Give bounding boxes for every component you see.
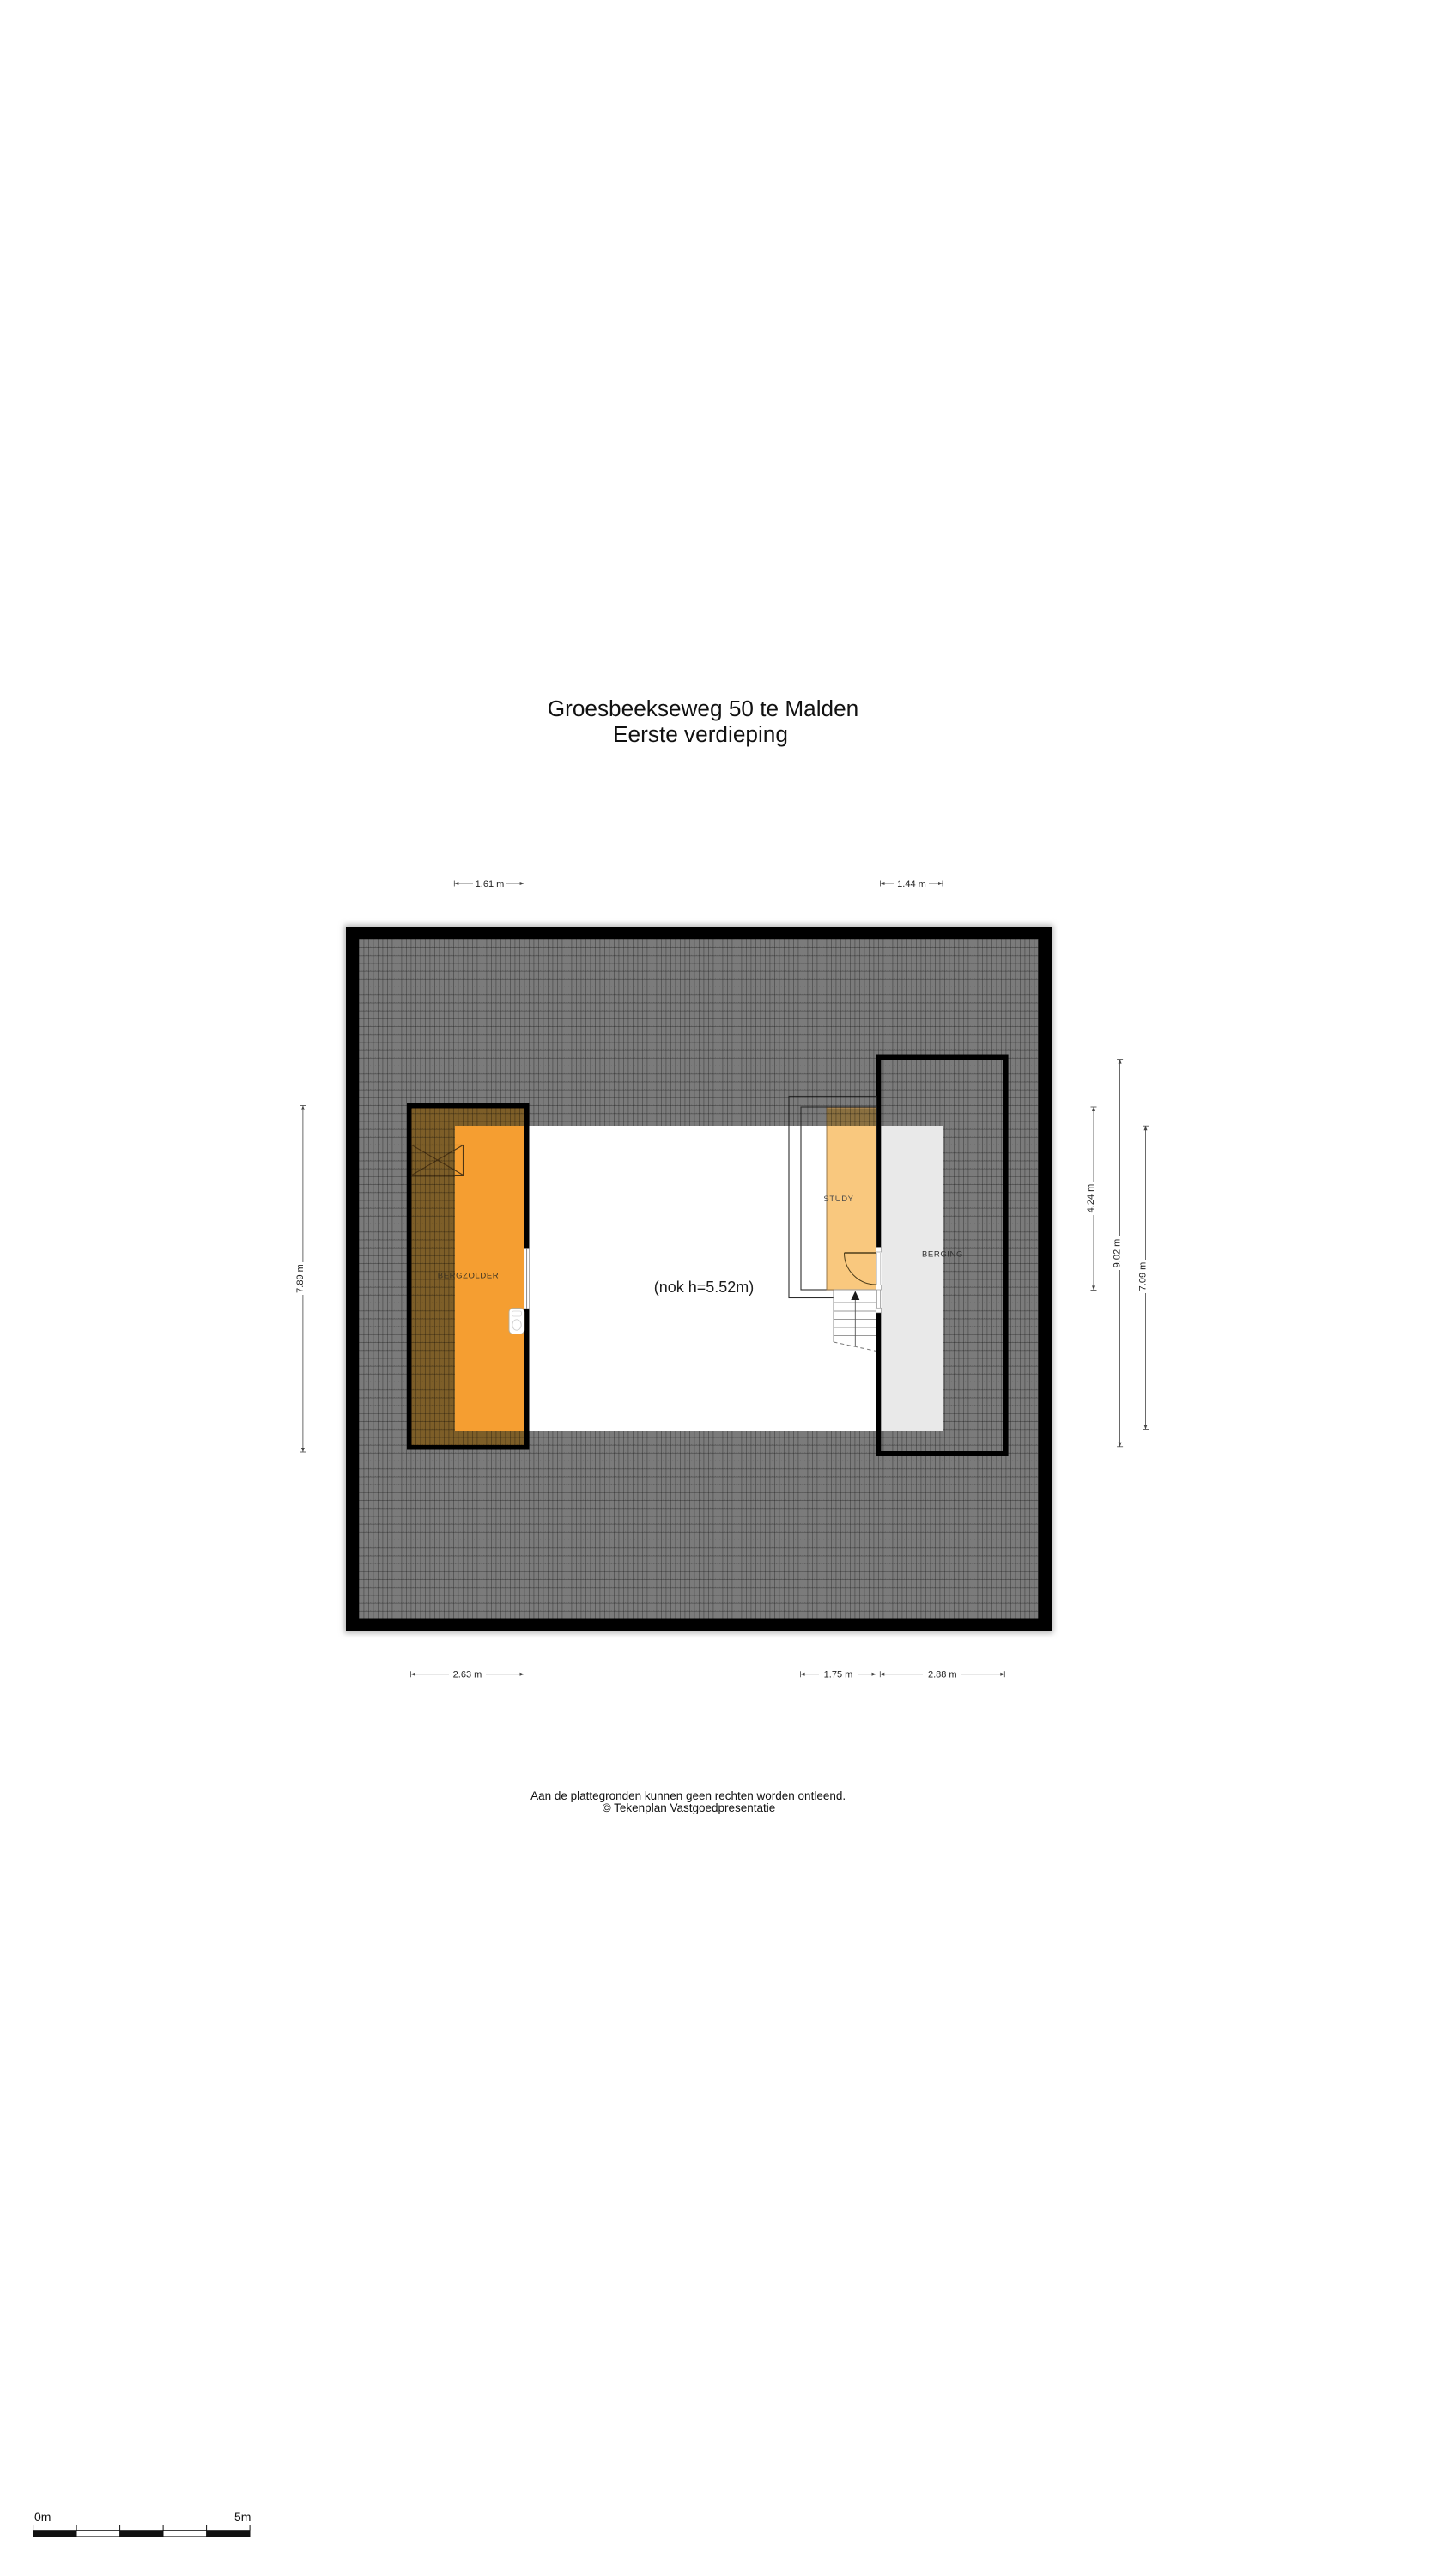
svg-text:5m: 5m: [234, 2510, 251, 2524]
svg-text:7.89 m: 7.89 m: [295, 1264, 306, 1293]
svg-text:© Tekenplan Vastgoedpresentati: © Tekenplan Vastgoedpresentatie: [603, 1801, 776, 1814]
svg-text:2.88 m: 2.88 m: [928, 1670, 957, 1680]
svg-text:Eerste verdieping: Eerste verdieping: [613, 721, 788, 747]
svg-text:BERGZOLDER: BERGZOLDER: [438, 1272, 499, 1281]
svg-text:Groesbeekseweg 50 te Malden: Groesbeekseweg 50 te Malden: [548, 696, 858, 721]
svg-text:4.24 m: 4.24 m: [1086, 1184, 1096, 1213]
svg-text:7.09 m: 7.09 m: [1138, 1262, 1149, 1291]
svg-text:BERGING: BERGING: [922, 1250, 963, 1260]
svg-text:0m: 0m: [34, 2510, 51, 2524]
svg-text:1.61 m: 1.61 m: [476, 879, 505, 890]
svg-text:Aan de plattegronden kunnen ge: Aan de plattegronden kunnen geen rechten…: [530, 1789, 846, 1802]
svg-text:9.02 m: 9.02 m: [1113, 1239, 1123, 1268]
svg-text:2.63 m: 2.63 m: [453, 1670, 482, 1680]
svg-text:1.75 m: 1.75 m: [824, 1670, 853, 1680]
svg-text:1.44 m: 1.44 m: [897, 879, 926, 890]
svg-text:STUDY: STUDY: [823, 1194, 853, 1204]
svg-text:(nok h=5.52m): (nok h=5.52m): [654, 1279, 755, 1296]
